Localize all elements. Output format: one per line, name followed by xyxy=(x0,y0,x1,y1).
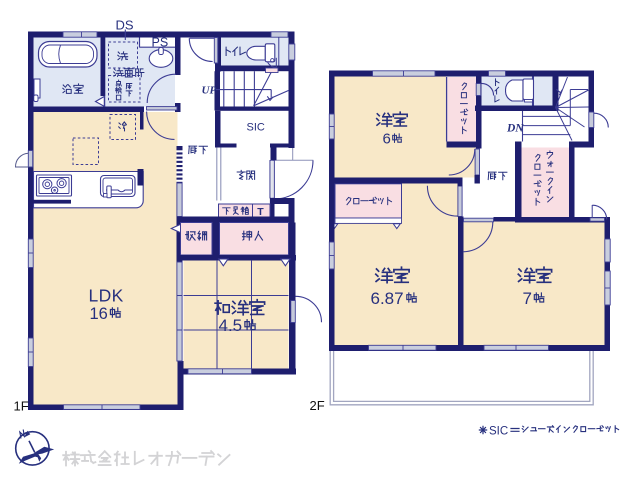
svg-text:6: 6 xyxy=(383,131,391,148)
svg-text:SIC: SIC xyxy=(247,122,265,134)
svg-text:1F: 1F xyxy=(14,399,29,414)
svg-text:6.87: 6.87 xyxy=(371,289,404,308)
svg-text:4.5: 4.5 xyxy=(219,316,243,335)
svg-text:LDK: LDK xyxy=(89,286,124,306)
svg-text:PS: PS xyxy=(152,36,169,50)
svg-text:7: 7 xyxy=(523,289,532,308)
svg-text:16: 16 xyxy=(90,305,108,323)
svg-text:UP: UP xyxy=(202,84,217,96)
svg-text:2F: 2F xyxy=(310,398,325,413)
svg-text:T: T xyxy=(257,206,264,218)
svg-text:DN: DN xyxy=(506,123,524,135)
svg-text:DS: DS xyxy=(116,18,134,33)
svg-text:SIC: SIC xyxy=(489,426,508,438)
